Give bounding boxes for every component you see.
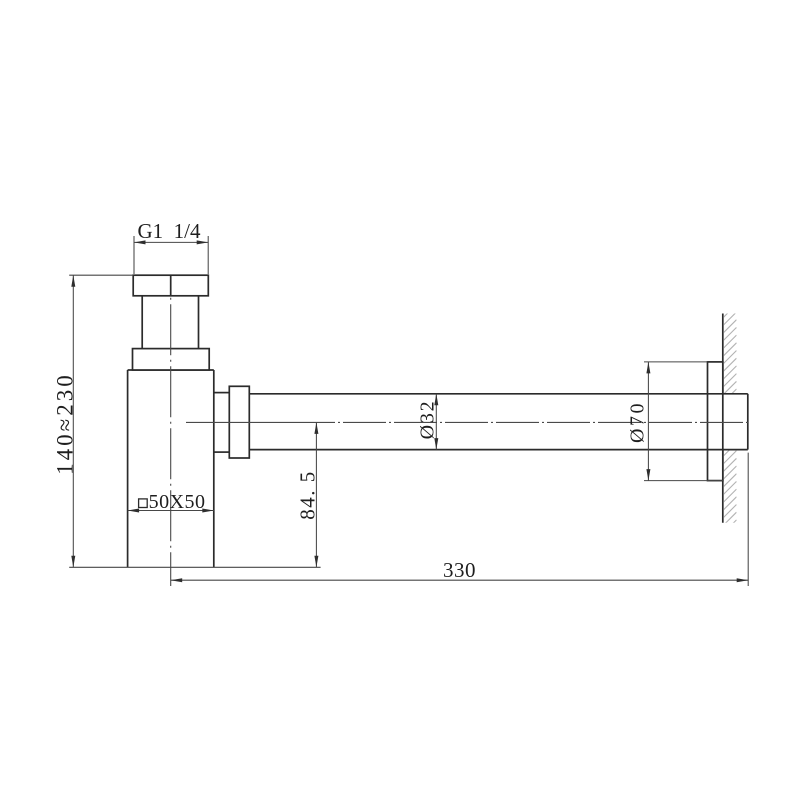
svg-text:Ø32: Ø32 (417, 400, 439, 440)
svg-text:330: 330 (443, 558, 476, 582)
svg-text:Ø70: Ø70 (627, 401, 649, 443)
svg-text:50X50: 50X50 (149, 491, 206, 513)
svg-text:G1 1/4: G1 1/4 (138, 219, 202, 243)
svg-text:84. 5: 84. 5 (296, 470, 320, 520)
svg-text:140≈230: 140≈230 (53, 372, 78, 475)
